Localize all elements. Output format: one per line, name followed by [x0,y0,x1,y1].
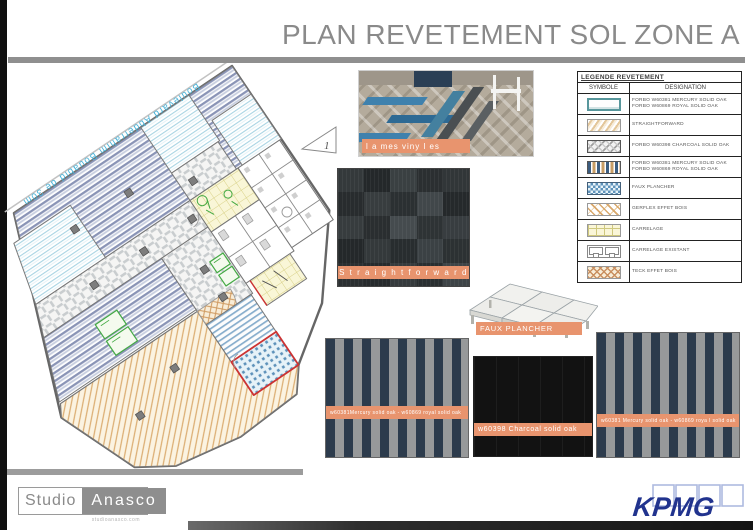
page-edge-shadow [188,521,753,530]
studio-logo-part2: Anasco [82,488,165,514]
legend-symbol-straightforward [587,119,621,132]
footer-rule [7,469,303,475]
legend-row: FORBO W60381 MERCURY SOLID OAKFORBO W608… [578,157,741,178]
legend-title: LEGENDE REVETEMENT [578,72,741,83]
kpmg-wordmark: KPMG [631,492,715,523]
legend-row: FORBO W60381 MERCURY SOLID OAKFORBO W608… [578,94,741,115]
swatch-stripes-left: w60381Mercury solid oak - w60869 royal s… [325,338,469,458]
legend-symbol-faux-plancher [587,182,621,195]
photo-chair [491,75,525,115]
swatch-stripes-right: w60381 Mercury solid oak - w60869 roya l… [596,332,740,458]
swatch-faux-plancher-illustration: FAUX PLANCHER [468,280,598,338]
studio-logo-url: studioanasco.com [18,515,148,523]
stripes-left-label-banner: w60381Mercury solid oak - w60869 royal s… [326,406,468,419]
detail-marker-number: 1 [324,140,330,152]
page-title: PLAN REVETEMENT SOL ZONE A [282,19,740,51]
legend-row: FAUX PLANCHER [578,178,741,199]
swatch-charcoal: w60398 Charcoal solid oak [473,356,593,457]
detail-marker-triangle [302,127,336,153]
legend-col-designation: DESIGNATION [630,83,741,93]
legend-symbol-teck [587,266,621,279]
charcoal-label-banner: w60398 Charcoal solid oak [474,423,592,436]
legend-symbol-mercury-royal [587,161,621,174]
legend-row: CARRELAGE [578,220,741,241]
legend-symbol-forbo-plain [587,98,621,111]
vinyl-label-banner: l a mes viny l es [362,139,470,153]
legend-col-symbole: SYMBOLE [578,83,630,93]
swatch-straightforward-carpet: S t r a i g h t f o r w a r d [337,168,470,287]
faux-plancher-label-banner: FAUX PLANCHER [476,322,582,335]
legend-row: TECK EFFET BOIS [578,262,741,282]
legend-symbol-gerflex [587,203,621,216]
legend-row: GERFLEX EFFET BOIS [578,199,741,220]
photo-furniture [414,71,452,87]
plan-sheet-screenshot: Boulevard Abderrahim Bouabid de 30m 1 PL… [0,0,753,530]
plan-note-circle [282,207,292,217]
kpmg-logo: KPMG [633,484,745,526]
legend-table: LEGENDE REVETEMENT SYMBOLE DESIGNATION F… [577,71,742,283]
legend-symbol-carrelage-existant [587,245,621,258]
stripes-right-label-banner: w60381 Mercury solid oak - w60869 roya l… [597,414,739,427]
title-underline-rule [8,57,745,63]
studio-logo-part1: Studio [19,488,82,514]
legend-row: STRAIGHTFORWARD [578,115,741,136]
studio-anasco-logo: Studio Anasco studioanasco.com [18,487,148,523]
straightforward-label-banner: S t r a i g h t f o r w a r d [338,266,469,279]
legend-symbol-charcoal [587,140,621,153]
swatch-vinyl-planks-photo: l a mes viny l es [358,70,534,157]
legend-symbol-carrelage [587,224,621,237]
legend-row: CARRELAGE EXISTANT [578,241,741,262]
legend-row: FORBO W60398 CHARCOAL SOLID OAK [578,136,741,157]
